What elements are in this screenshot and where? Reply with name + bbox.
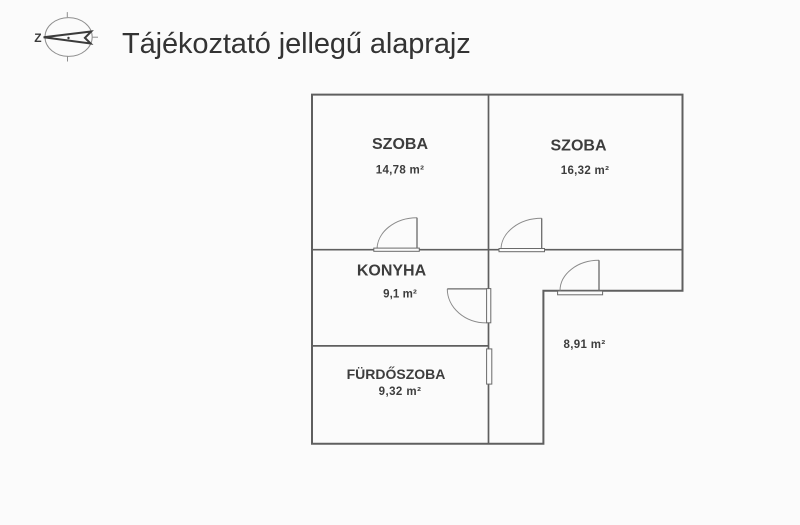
svg-text:14,78 m²: 14,78 m² bbox=[376, 165, 424, 177]
svg-text:SZOBA: SZOBA bbox=[551, 138, 607, 155]
svg-text:9,32 m²: 9,32 m² bbox=[379, 386, 422, 398]
svg-text:SZOBA: SZOBA bbox=[372, 136, 428, 153]
svg-text:Z: Z bbox=[34, 31, 41, 45]
svg-text:KONYHA: KONYHA bbox=[357, 263, 427, 280]
svg-text:16,32 m²: 16,32 m² bbox=[561, 165, 609, 177]
svg-text:8,91 m²: 8,91 m² bbox=[563, 339, 605, 351]
svg-text:FÜRDŐSZOBA: FÜRDŐSZOBA bbox=[347, 365, 446, 382]
svg-text:9,1 m²: 9,1 m² bbox=[383, 289, 417, 301]
